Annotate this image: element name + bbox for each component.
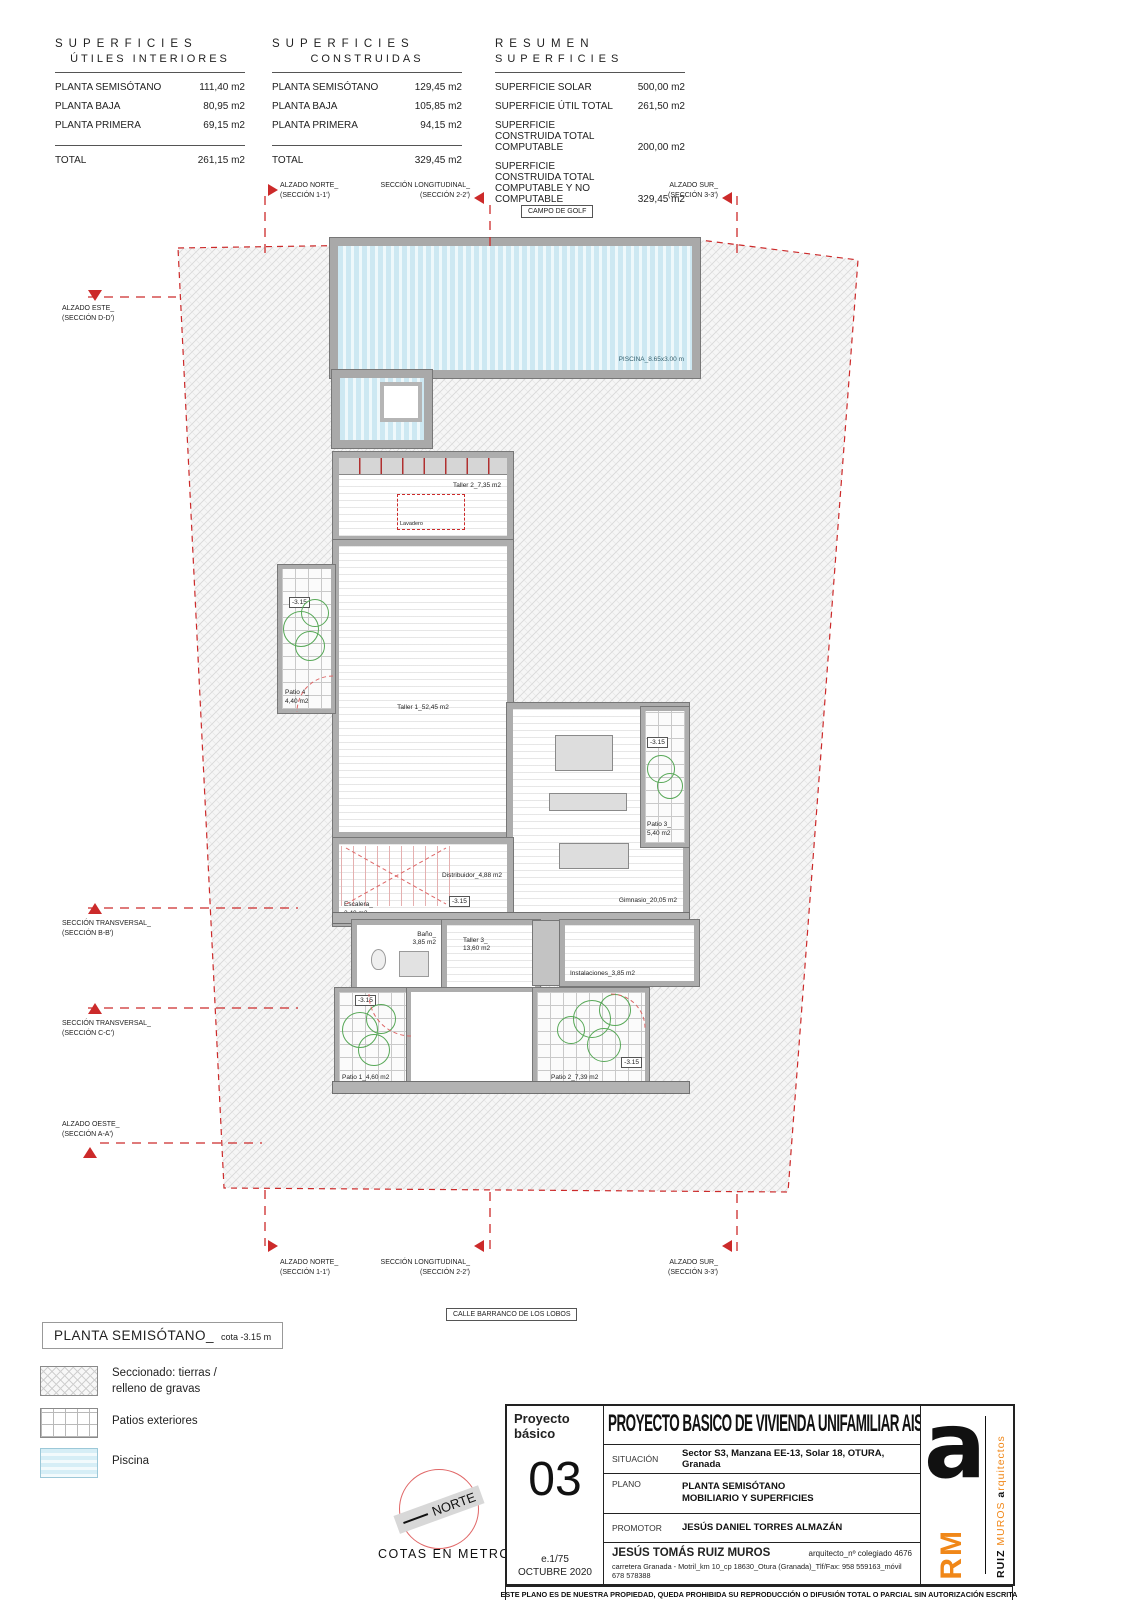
section-line1: SECCIÓN LONGITUDINAL_ — [381, 182, 470, 189]
table-subtitle: CONSTRUIDAS — [272, 53, 462, 65]
cell-label: PLANTA PRIMERA — [55, 120, 141, 131]
table-header: SUPERFICIES ÚTILES INTERIORES — [55, 38, 245, 73]
room-label-taller2: Taller 2_7,35 m2 — [453, 482, 501, 490]
level-tag: -3.15 — [647, 737, 668, 748]
section-line2: (SECCIÓN 1-1') — [280, 192, 330, 199]
room-label-patio4: Patio 4_ 4,40 m2 — [285, 689, 309, 706]
table-subtitle: ÚTILES INTERIORES — [55, 53, 245, 65]
section-label-alzado-norte-top: ALZADO NORTE_ (SECCIÓN 1-1') — [280, 181, 338, 201]
architect-address: carretera Granada - Motril_km 10_cp 1863… — [612, 1562, 912, 1580]
cell-label: PLANTA SEMISÓTANO — [55, 82, 161, 93]
patio-1: -3.15 Patio 1_4,60 m2 — [335, 988, 415, 1088]
cell-label: PLANTA PRIMERA — [272, 120, 358, 131]
legend-swatch-piscina — [40, 1448, 98, 1478]
cell-value: 69,15 m2 — [203, 120, 245, 131]
patio-4: -3.15 Patio 4_ 4,40 m2 — [278, 565, 335, 713]
patio-3: -3.15 Patio 3_ 5,40 m2 — [641, 707, 689, 847]
room-label-instalaciones: Instalaciones_3,85 m2 — [570, 970, 635, 978]
section-label-transversal-c: SECCIÓN TRANSVERSAL_ (SECCIÓN C-C') — [62, 1019, 151, 1039]
table-row: PLANTA SEMISÓTANO111,40 m2 — [55, 82, 245, 93]
north-line-icon — [403, 1512, 428, 1523]
logo-arq-rest: rquitectos — [995, 1435, 1007, 1491]
gym-equipment-icon — [559, 843, 629, 869]
situacion-row: SITUACIÓN Sector S3, Manzana EE-13, Sola… — [604, 1445, 920, 1474]
section-label-alzado-norte-bottom: ALZADO NORTE_ (SECCIÓN 1-1') — [280, 1258, 338, 1278]
pool-annex — [332, 370, 432, 448]
cell-label: SUPERFICIE CONSTRUIDA TOTAL COMPUTABLE — [495, 120, 623, 153]
room-label-bano: Baño_ 3,85 m2 — [413, 931, 437, 948]
section-line1: ALZADO NORTE_ — [280, 1259, 338, 1266]
tree-icon — [366, 1004, 396, 1034]
situacion-label: SITUACIÓN — [612, 1454, 678, 1464]
logo-ruiz: RUIZ — [995, 1550, 1007, 1579]
patio3-line2: 5,40 m2 — [647, 830, 671, 837]
cell-value: 200,00 m2 — [638, 142, 685, 153]
table-row: SUPERFICIE ÚTIL TOTAL261,50 m2 — [495, 101, 685, 112]
north-label: NORTE — [430, 1489, 478, 1519]
table-row: PLANTA BAJA80,95 m2 — [55, 101, 245, 112]
shaft-wall — [532, 920, 560, 986]
tree-icon — [657, 773, 683, 799]
cell-value: 261,15 m2 — [198, 155, 245, 166]
project-type-line1: Proyecto — [514, 1411, 570, 1426]
room-label-distribuidor: Distribuidor_4,88 m2 — [442, 872, 502, 880]
promotor-row: PROMOTOR JESÚS DANIEL TORRES ALMAZÁN — [604, 1514, 920, 1543]
project-title-row: PROYECTO BASICO DE VIVIENDA UNIFAMILIAR … — [604, 1406, 920, 1445]
room-taller1: Taller 1_52,45 m2 — [333, 540, 513, 838]
cell-label: TOTAL — [55, 155, 86, 166]
title-block-left-column: Proyecto básico 03 e.1/75 OCTUBRE 2020 — [507, 1406, 604, 1584]
room-taller3: Taller 3_ 13,60 m2 — [442, 920, 540, 994]
table-row: SUPERFICIE CONSTRUIDA TOTAL COMPUTABLE20… — [495, 120, 685, 153]
legend-line2: relleno de gravas — [112, 1383, 200, 1395]
architectural-plan-sheet: SUPERFICIES ÚTILES INTERIORES PLANTA SEM… — [0, 0, 1131, 1600]
section-line1: ALZADO ESTE_ — [62, 305, 114, 312]
title-block-middle-column: PROYECTO BASICO DE VIVIENDA UNIFAMILIAR … — [604, 1406, 920, 1584]
section-label-alzado-sur-top: ALZADO SUR_ (SECCIÓN 3-3') — [598, 181, 718, 201]
table-subtitle: SUPERFICIES — [495, 53, 685, 65]
section-label-transversal-b: SECCIÓN TRANSVERSAL_ (SECCIÓN B-B') — [62, 919, 151, 939]
legend-label-piscina: Piscina — [112, 1454, 149, 1470]
escalera-line1: Escalera_ — [344, 901, 373, 908]
promotor-label: PROMOTOR — [612, 1523, 678, 1533]
tree-icon — [301, 599, 329, 627]
lavadero-zone: Lavadero — [397, 494, 465, 530]
logo-a-glyph: a — [924, 1400, 986, 1492]
level-tag: -3.15 — [355, 995, 376, 1006]
plano-row: PLANO PLANTA SEMISÓTANO MOBILIARIO Y SUP… — [604, 1474, 920, 1514]
plano-value-line1: PLANTA SEMISÓTANO — [682, 1481, 785, 1492]
table-title: SUPERFICIES — [55, 38, 245, 50]
table-row: PLANTA PRIMERA94,15 m2 — [272, 120, 462, 131]
section-line1: ALZADO SUR_ — [669, 1259, 718, 1266]
section-line2: (SECCIÓN B-B') — [62, 930, 114, 937]
firm-logo: a RM RUIZ MUROS arquitectos — [920, 1406, 1013, 1584]
legend-line1: Seccionado: tierras / — [112, 1367, 217, 1379]
cell-value: 329,45 m2 — [415, 155, 462, 166]
room-label-patio2: Patio 2_7,39 m2 — [551, 1074, 598, 1082]
cell-label: SUPERFICIE ÚTIL TOTAL — [495, 101, 613, 112]
table-total-row: TOTAL261,15 m2 — [55, 145, 245, 166]
project-type: Proyecto básico — [514, 1412, 596, 1442]
logo-arq-a: a — [995, 1491, 1007, 1498]
room-piscina: PISCINA_8.65x3.00 m — [330, 238, 700, 378]
logo-rm-text: RM — [935, 1529, 969, 1580]
wall-segment — [333, 1082, 689, 1093]
plan-title-cota: cota -3.15 m — [221, 1332, 271, 1342]
cell-label: TOTAL — [272, 155, 303, 166]
section-line2: (SECCIÓN 2-2') — [420, 192, 470, 199]
patio4-line2: 4,40 m2 — [285, 698, 309, 705]
cotas-note: COTAS EN METROS — [378, 1547, 520, 1561]
table-total-row: TOTAL329,45 m2 — [272, 145, 462, 166]
room-bano: Baño_ 3,85 m2 — [352, 920, 446, 994]
plano-label: PLANO — [612, 1477, 678, 1489]
room-label-gimnasio: Gimnasio_20,05 m2 — [619, 897, 677, 905]
section-label-longitudinal-top: SECCIÓN LONGITUDINAL_ (SECCIÓN 2-2') — [348, 181, 470, 201]
room-label-lavadero: Lavadero — [400, 521, 423, 528]
section-line2: (SECCIÓN 3-3') — [668, 1269, 718, 1276]
bano-line1: Baño_ — [417, 931, 436, 938]
table-superficies-utiles: SUPERFICIES ÚTILES INTERIORES PLANTA SEM… — [55, 38, 245, 174]
garage-door-strip — [339, 458, 507, 475]
tree-icon — [599, 994, 631, 1026]
shower-icon — [399, 951, 429, 977]
table-row: PLANTA SEMISÓTANO129,45 m2 — [272, 82, 462, 93]
room-label-taller3: Taller 3_ 13,60 m2 — [463, 937, 490, 954]
section-line1: ALZADO NORTE_ — [280, 182, 338, 189]
section-label-alzado-sur-bottom: ALZADO SUR_ (SECCIÓN 3-3') — [598, 1258, 718, 1278]
bano-line2: 3,85 m2 — [413, 939, 437, 946]
north-band: NORTE — [393, 1485, 484, 1534]
table-header: SUPERFICIES CONSTRUIDAS — [272, 38, 462, 73]
legend-label-patios: Patios exteriores — [112, 1414, 198, 1430]
taller3-line1: Taller 3_ — [463, 937, 488, 944]
section-line2: (SECCIÓN A-A') — [62, 1131, 113, 1138]
table-title: SUPERFICIES — [272, 38, 462, 50]
room-instalaciones: Instalaciones_3,85 m2 — [560, 920, 699, 986]
project-title: PROYECTO BASICO DE VIVIENDA UNIFAMILIAR … — [608, 1411, 920, 1438]
table-header: RESUMEN SUPERFICIES — [495, 38, 685, 73]
toilet-icon — [371, 949, 386, 970]
architect-name: JESÚS TOMÁS RUIZ MUROS — [612, 1547, 770, 1559]
architect-registration: arquitecto_nº colegiado 4676 — [809, 1549, 912, 1558]
section-line1: SECCIÓN TRANSVERSAL_ — [62, 920, 151, 927]
cell-value: 80,95 m2 — [203, 101, 245, 112]
patio3-line1: Patio 3_ — [647, 821, 671, 828]
cell-value: 129,45 m2 — [415, 82, 462, 93]
section-line1: ALZADO OESTE_ — [62, 1121, 120, 1128]
patio4-line1: Patio 4_ — [285, 689, 309, 696]
tree-icon — [557, 1016, 585, 1044]
table-row: SUPERFICIE SOLAR500,00 m2 — [495, 82, 685, 93]
stairs-treads — [341, 846, 457, 906]
room-label-patio3: Patio 3_ 5,40 m2 — [647, 821, 671, 838]
plan-title-box: PLANTA SEMISÓTANO_ cota -3.15 m — [42, 1322, 283, 1349]
cell-value: 111,40 m2 — [199, 82, 245, 93]
patio-2: -3.15 Patio 2_7,39 m2 — [533, 988, 649, 1088]
cell-label: PLANTA SEMISÓTANO — [272, 82, 378, 93]
room-taller2: Taller 2_7,35 m2 Lavadero — [333, 452, 513, 542]
tree-icon — [295, 631, 325, 661]
section-label-longitudinal-bottom: SECCIÓN LONGITUDINAL_ (SECCIÓN 2-2') — [348, 1258, 470, 1278]
table-row: PLANTA BAJA105,85 m2 — [272, 101, 462, 112]
legend-swatch-seccionado — [40, 1366, 98, 1396]
context-label-campo-de-golf: CAMPO DE GOLF — [521, 205, 593, 218]
drawing-date: OCTUBRE 2020 — [514, 1567, 596, 1578]
north-arrow: NORTE — [399, 1469, 479, 1549]
section-label-alzado-este: ALZADO ESTE_ (SECCIÓN D-D') — [62, 304, 114, 324]
room-lower-hall — [407, 988, 541, 1088]
promotor-value: JESÚS DANIEL TORRES ALMAZÁN — [682, 1522, 842, 1533]
tree-icon — [358, 1034, 390, 1066]
level-tag: -3.15 — [449, 896, 470, 907]
section-line2: (SECCIÓN C-C') — [62, 1030, 114, 1037]
cell-label: PLANTA BAJA — [55, 101, 120, 112]
section-line1: ALZADO SUR_ — [669, 182, 718, 189]
section-line1: SECCIÓN LONGITUDINAL_ — [381, 1259, 470, 1266]
room-label-patio1: Patio 1_4,60 m2 — [342, 1074, 389, 1082]
plano-value-line2: MOBILIARIO Y SUPERFICIES — [682, 1493, 814, 1504]
table-title: RESUMEN — [495, 38, 685, 50]
context-label-calle: CALLE BARRANCO DE LOS LOBOS — [446, 1308, 577, 1321]
section-line1: SECCIÓN TRANSVERSAL_ — [62, 1020, 151, 1027]
cell-value: 261,50 m2 — [638, 101, 685, 112]
room-label-taller1: Taller 1_52,45 m2 — [339, 704, 507, 712]
architect-row: JESÚS TOMÁS RUIZ MUROS arquitecto_nº col… — [604, 1543, 920, 1584]
section-line2: (SECCIÓN 1-1') — [280, 1269, 330, 1276]
logo-firm-name: RUIZ MUROS arquitectos — [995, 1412, 1007, 1578]
cell-value: 94,15 m2 — [420, 120, 462, 131]
project-type-line2: básico — [514, 1426, 555, 1441]
cell-label: SUPERFICIE SOLAR — [495, 82, 592, 93]
legend-swatch-patios — [40, 1408, 98, 1438]
section-label-alzado-oeste: ALZADO OESTE_ (SECCIÓN A-A') — [62, 1120, 120, 1140]
pool-steps — [380, 382, 422, 422]
tree-icon — [587, 1028, 621, 1062]
title-block: Proyecto básico 03 e.1/75 OCTUBRE 2020 P… — [505, 1404, 1015, 1586]
cell-value: 500,00 m2 — [638, 82, 685, 93]
cell-label: PLANTA BAJA — [272, 101, 337, 112]
architect-name-row: JESÚS TOMÁS RUIZ MUROS arquitecto_nº col… — [612, 1547, 912, 1559]
section-line2: (SECCIÓN 2-2') — [420, 1269, 470, 1276]
gym-equipment-icon — [555, 735, 613, 771]
room-label-piscina: PISCINA_8.65x3.00 m — [619, 356, 684, 364]
logo-divider — [985, 1416, 987, 1574]
cell-value: 105,85 m2 — [415, 101, 462, 112]
logo-muros: MUROS — [995, 1501, 1007, 1545]
sheet-number: 03 — [528, 1456, 581, 1504]
situacion-value: Sector S3, Manzana EE-13, Solar 18, OTUR… — [682, 1448, 912, 1470]
legend-label-seccionado: Seccionado: tierras / relleno de gravas — [112, 1366, 217, 1397]
plano-value: PLANTA SEMISÓTANO MOBILIARIO Y SUPERFICI… — [682, 1481, 814, 1507]
drawing-scale: e.1/75 — [514, 1554, 596, 1565]
plan-title: PLANTA SEMISÓTANO_ — [54, 1328, 214, 1343]
table-row: PLANTA PRIMERA69,15 m2 — [55, 120, 245, 131]
gym-equipment-icon — [549, 793, 627, 811]
copyright-strip: ESTE PLANO ES DE NUESTRA PROPIEDAD, QUED… — [505, 1586, 1013, 1600]
section-line2: (SECCIÓN 3-3') — [668, 192, 718, 199]
section-line2: (SECCIÓN D-D') — [62, 315, 114, 322]
taller3-line2: 13,60 m2 — [463, 945, 490, 952]
level-tag: -3.15 — [621, 1057, 642, 1068]
table-superficies-construidas: SUPERFICIES CONSTRUIDAS PLANTA SEMISÓTAN… — [272, 38, 462, 174]
